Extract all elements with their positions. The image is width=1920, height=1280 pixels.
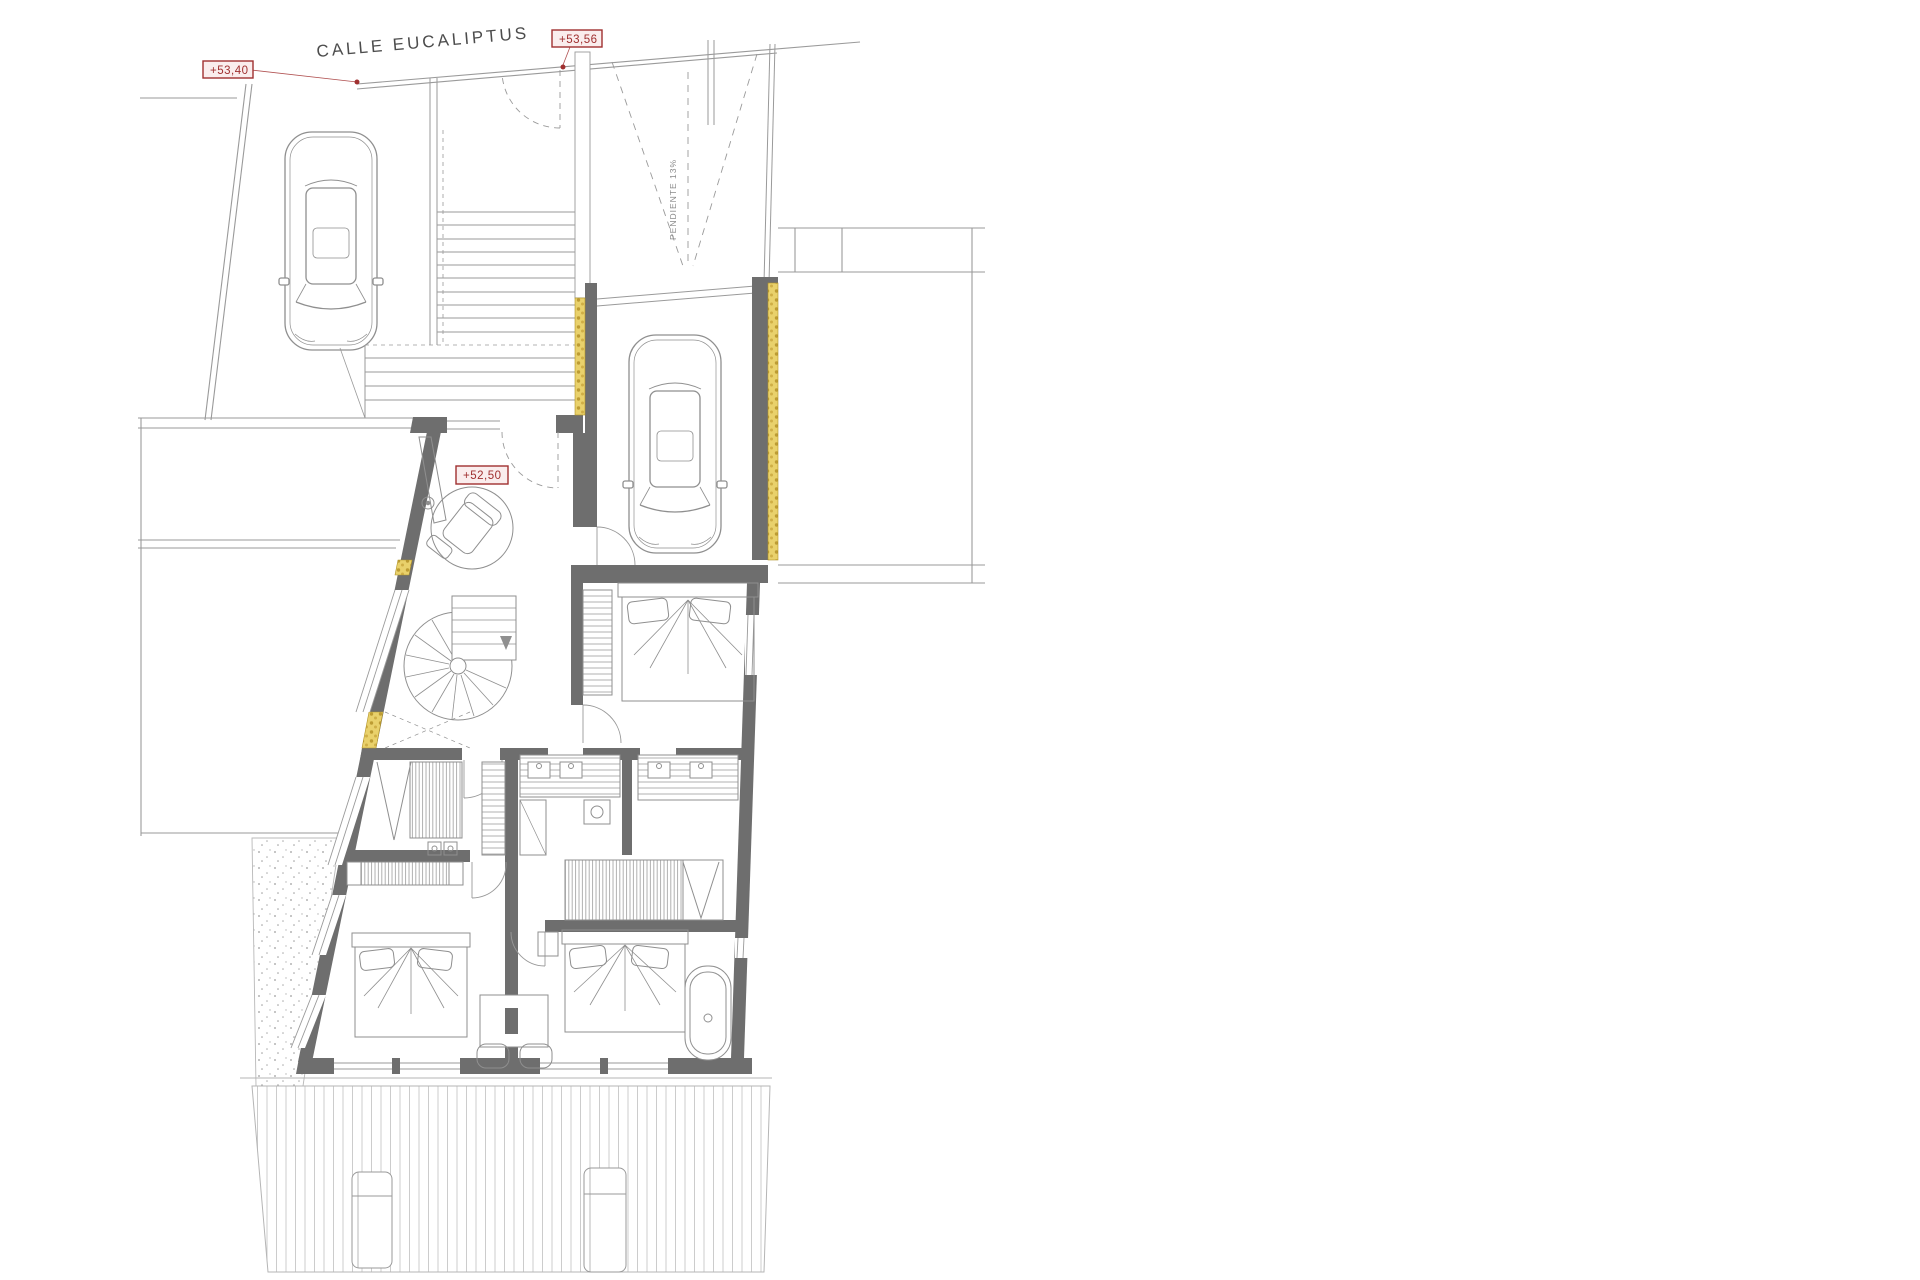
elevation-label-street-entrance: +53,56 [559,34,598,46]
floor-plan-page: PENDIENTE 13% [0,0,1920,1280]
ramp-slope-label: PENDIENTE 13% [668,159,678,240]
closet-strip [482,762,505,855]
bedroom-1-bed [618,583,758,701]
street-name-label: CALLE EUCALIPTUS [316,23,530,61]
sun-lounger-2 [584,1168,626,1272]
floor-plan-canvas: PENDIENTE 13% [0,0,1920,1280]
elevation-label-street-west: +53,40 [210,65,249,77]
spiral-staircase [385,596,516,748]
armchair [425,488,503,571]
site-boundary-lines [138,42,985,836]
dressing-room-left [377,762,505,855]
terrace-deck [240,1078,772,1272]
bedroom-2-bed [352,933,470,1037]
bedroom-1 [583,583,758,701]
wardrobe-hatch [410,762,462,838]
garage-car [623,335,727,553]
sun-lounger-1 [352,1172,392,1268]
bedroom-2 [347,862,470,1037]
street-car [279,132,383,350]
street-label-group: CALLE EUCALIPTUS [316,23,530,61]
access-ramp: PENDIENTE 13% [575,40,775,306]
toilet [584,800,610,824]
round-rug [431,487,513,569]
closet-open-doors [683,862,719,918]
elevation-label-entry-hall: +52,50 [463,470,502,482]
bedroom-1-closet [583,590,612,695]
bedroom-2-closet [347,862,463,885]
bedroom-3 [538,930,731,1060]
bathtub [685,966,731,1060]
wardrobe-open-door [377,762,394,840]
dressing-closet [565,860,683,920]
elevation-markers: +53,40 +53,56 +52,50 [203,30,602,484]
bedroom-3-bed [538,930,688,1032]
bathroom-left [520,755,620,855]
